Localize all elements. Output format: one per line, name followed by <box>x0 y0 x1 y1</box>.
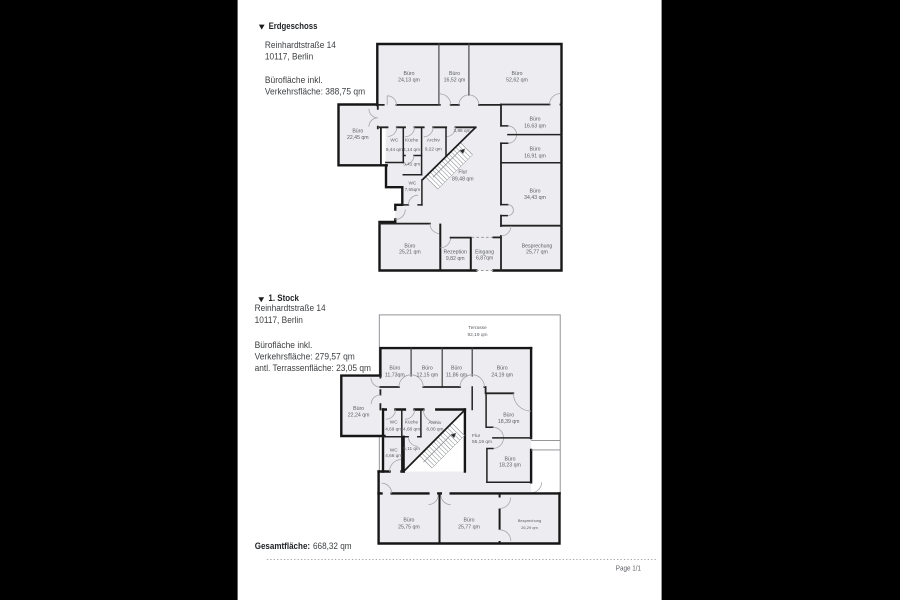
svg-text:25,77 qm: 25,77 qm <box>526 250 548 256</box>
svg-text:Büro: Büro <box>451 365 462 371</box>
svg-text:11,86 qm: 11,86 qm <box>446 372 467 378</box>
svg-text:22,45 qm: 22,45 qm <box>347 135 369 141</box>
svg-text:Büro: Büro <box>404 71 415 77</box>
svg-text:89,48 qm: 89,48 qm <box>452 176 474 182</box>
svg-text:25,75 qm: 25,75 qm <box>398 524 420 530</box>
svg-text:4,68 qm: 4,68 qm <box>403 427 420 432</box>
svg-text:Büro: Büro <box>512 71 523 77</box>
svg-text:Büro: Büro <box>422 365 433 371</box>
svg-text:Büro: Büro <box>389 365 400 371</box>
svg-text:WC: WC <box>390 447 398 452</box>
svg-text:4,66 qm: 4,66 qm <box>385 453 402 458</box>
svg-text:4,14 qm: 4,14 qm <box>403 147 420 152</box>
svg-text:1. Stock: 1. Stock <box>268 293 299 303</box>
svg-text:Flur: Flur <box>472 433 481 439</box>
svg-text:Page 1/1: Page 1/1 <box>616 565 641 572</box>
svg-text:34,43 qm: 34,43 qm <box>524 195 546 201</box>
svg-text:Besprechung: Besprechung <box>518 518 542 523</box>
svg-text:antl. Terrassenfläche: 23,05 q: antl. Terrassenfläche: 23,05 qm <box>255 363 371 373</box>
svg-text:Archiv: Archiv <box>427 138 441 143</box>
svg-text:Büro: Büro <box>505 456 516 462</box>
svg-text:10117, Berlin: 10117, Berlin <box>265 51 313 61</box>
svg-text:Büro: Büro <box>403 517 414 523</box>
svg-text:16,52 qm: 16,52 qm <box>444 78 466 84</box>
svg-text:Büro: Büro <box>503 412 514 418</box>
svg-text:WC: WC <box>390 138 398 143</box>
svg-text:18,23 qm: 18,23 qm <box>499 463 521 469</box>
svg-text:12,15 qm: 12,15 qm <box>416 372 438 378</box>
svg-text:3,88 qm: 3,88 qm <box>454 128 471 133</box>
svg-text:Reinhardtstraße 14: Reinhardtstraße 14 <box>265 40 336 50</box>
svg-text:Verkehrsfläche: 279,57 qm: Verkehrsfläche: 279,57 qm <box>255 351 355 361</box>
svg-text:Erdgeschoss: Erdgeschoss <box>269 21 318 31</box>
svg-text:24,13 qm: 24,13 qm <box>398 78 420 84</box>
svg-text:18,39 qm: 18,39 qm <box>498 419 520 425</box>
svg-text:Büro: Büro <box>353 406 364 412</box>
svg-text:11,73qm: 11,73qm <box>385 372 405 378</box>
svg-text:Flur: Flur <box>458 170 467 176</box>
svg-text:Büro: Büro <box>464 517 475 523</box>
svg-text:55,19 qm: 55,19 qm <box>472 439 492 445</box>
svg-text:Büro: Büro <box>530 147 541 153</box>
svg-text:WC: WC <box>390 420 398 425</box>
svg-text:22,24 qm: 22,24 qm <box>348 413 370 419</box>
svg-text:25,77 qm: 25,77 qm <box>458 524 480 530</box>
svg-text:Büro: Büro <box>352 128 363 134</box>
svg-text:10117, Berlin: 10117, Berlin <box>255 315 303 325</box>
svg-text:Büro: Büro <box>497 365 508 371</box>
svg-text:8,00 qm: 8,00 qm <box>426 427 443 432</box>
svg-text:Eingang: Eingang <box>475 249 494 255</box>
svg-text:Küche: Küche <box>405 138 419 143</box>
svg-text:9,82 qm: 9,82 qm <box>446 256 465 262</box>
svg-text:5,11 qm: 5,11 qm <box>403 446 420 451</box>
svg-text:Büro: Büro <box>530 117 541 123</box>
svg-text:16,91 qm: 16,91 qm <box>524 153 546 159</box>
svg-text:9,22 qm: 9,22 qm <box>425 146 442 151</box>
svg-text:26,29 qm: 26,29 qm <box>521 525 538 530</box>
svg-text:25,21 qm: 25,21 qm <box>399 250 421 256</box>
svg-text:Bürofläche inkl.: Bürofläche inkl. <box>265 75 323 85</box>
svg-text:Gesamtfläche:: Gesamtfläche: <box>255 541 310 551</box>
svg-text:Terrasse: Terrasse <box>468 325 487 331</box>
svg-text:Archiv: Archiv <box>428 420 442 425</box>
svg-text:4,69 qm: 4,69 qm <box>385 427 402 432</box>
svg-text:WC: WC <box>408 181 416 186</box>
svg-text:Büro: Büro <box>404 243 415 249</box>
svg-text:Büro: Büro <box>530 188 541 194</box>
svg-text:Küche: Küche <box>405 420 419 425</box>
svg-text:24,19 qm: 24,19 qm <box>491 372 513 378</box>
svg-text:92,19 qm: 92,19 qm <box>467 332 487 338</box>
svg-text:Bürofläche inkl.: Bürofläche inkl. <box>255 340 313 350</box>
svg-text:3,41 qm: 3,41 qm <box>403 161 420 166</box>
svg-text:Besprechung: Besprechung <box>522 243 553 249</box>
svg-text:668,32 qm: 668,32 qm <box>313 541 352 551</box>
svg-text:Büro: Büro <box>449 71 460 77</box>
svg-text:52,62 qm: 52,62 qm <box>506 78 528 84</box>
svg-text:Verkehrsfläche: 388,75 qm: Verkehrsfläche: 388,75 qm <box>265 87 365 97</box>
svg-text:7,65qm: 7,65qm <box>405 187 421 192</box>
svg-text:6,87qm: 6,87qm <box>476 256 493 262</box>
svg-text:Reinhardtstraße 14: Reinhardtstraße 14 <box>255 303 326 313</box>
svg-text:16,63 qm: 16,63 qm <box>524 124 546 130</box>
svg-text:Rezeption: Rezeption <box>444 249 467 255</box>
svg-text:9,44 qm: 9,44 qm <box>386 147 403 152</box>
